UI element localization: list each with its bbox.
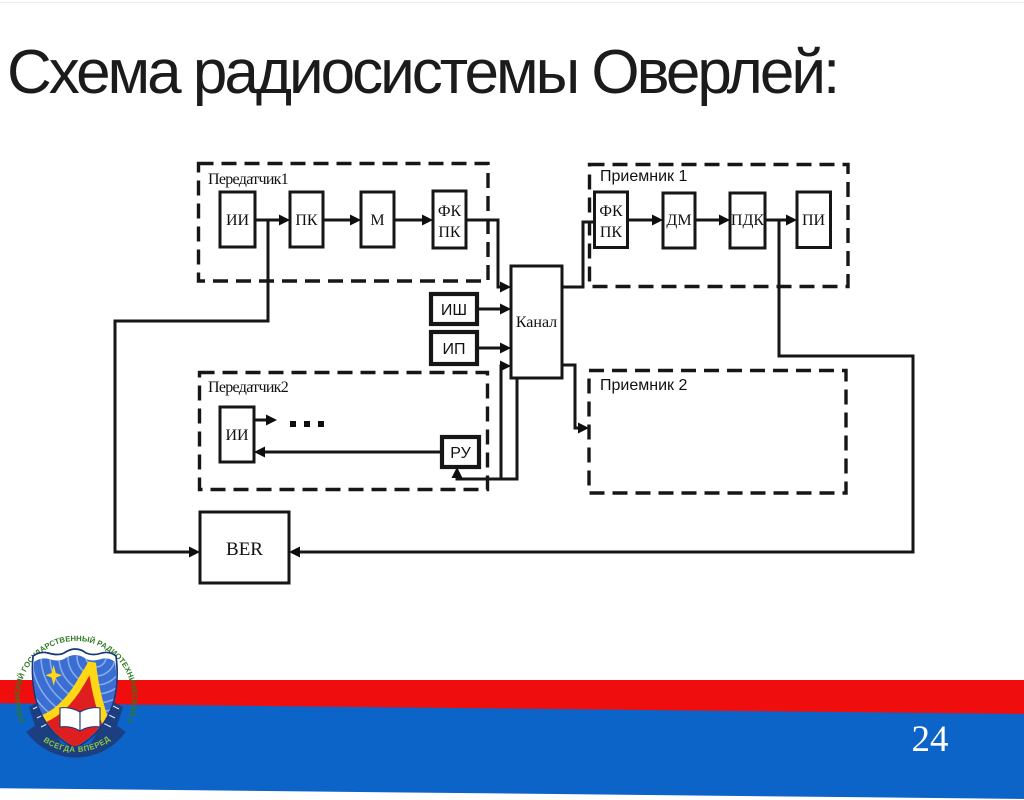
svg-text:М: М (370, 212, 384, 229)
svg-text:ПДК: ПДК (731, 212, 764, 229)
svg-text:Передатчик1: Передатчик1 (208, 171, 289, 188)
svg-text:ФК: ФК (599, 203, 623, 220)
svg-text:Канал: Канал (516, 314, 557, 331)
svg-text:Передатчик2: Передатчик2 (208, 379, 289, 396)
svg-text:ПК: ПК (438, 224, 461, 241)
svg-text:ИИ: ИИ (226, 212, 250, 229)
svg-text:ИИ: ИИ (225, 427, 249, 444)
svg-text:Приемник 2: Приемник 2 (600, 377, 687, 394)
svg-text:Приемник 1: Приемник 1 (600, 168, 687, 185)
svg-text:ИШ: ИШ (441, 302, 467, 319)
svg-text:ПК: ПК (295, 212, 318, 229)
svg-text:ДМ: ДМ (666, 212, 691, 229)
svg-text:ФК: ФК (438, 203, 462, 220)
svg-text:ИП: ИП (443, 341, 466, 358)
svg-text:BER: BER (226, 539, 263, 560)
svg-text:ПИ: ПИ (802, 212, 826, 229)
svg-text:ПК: ПК (600, 224, 623, 241)
svg-text:РУ: РУ (450, 445, 471, 462)
